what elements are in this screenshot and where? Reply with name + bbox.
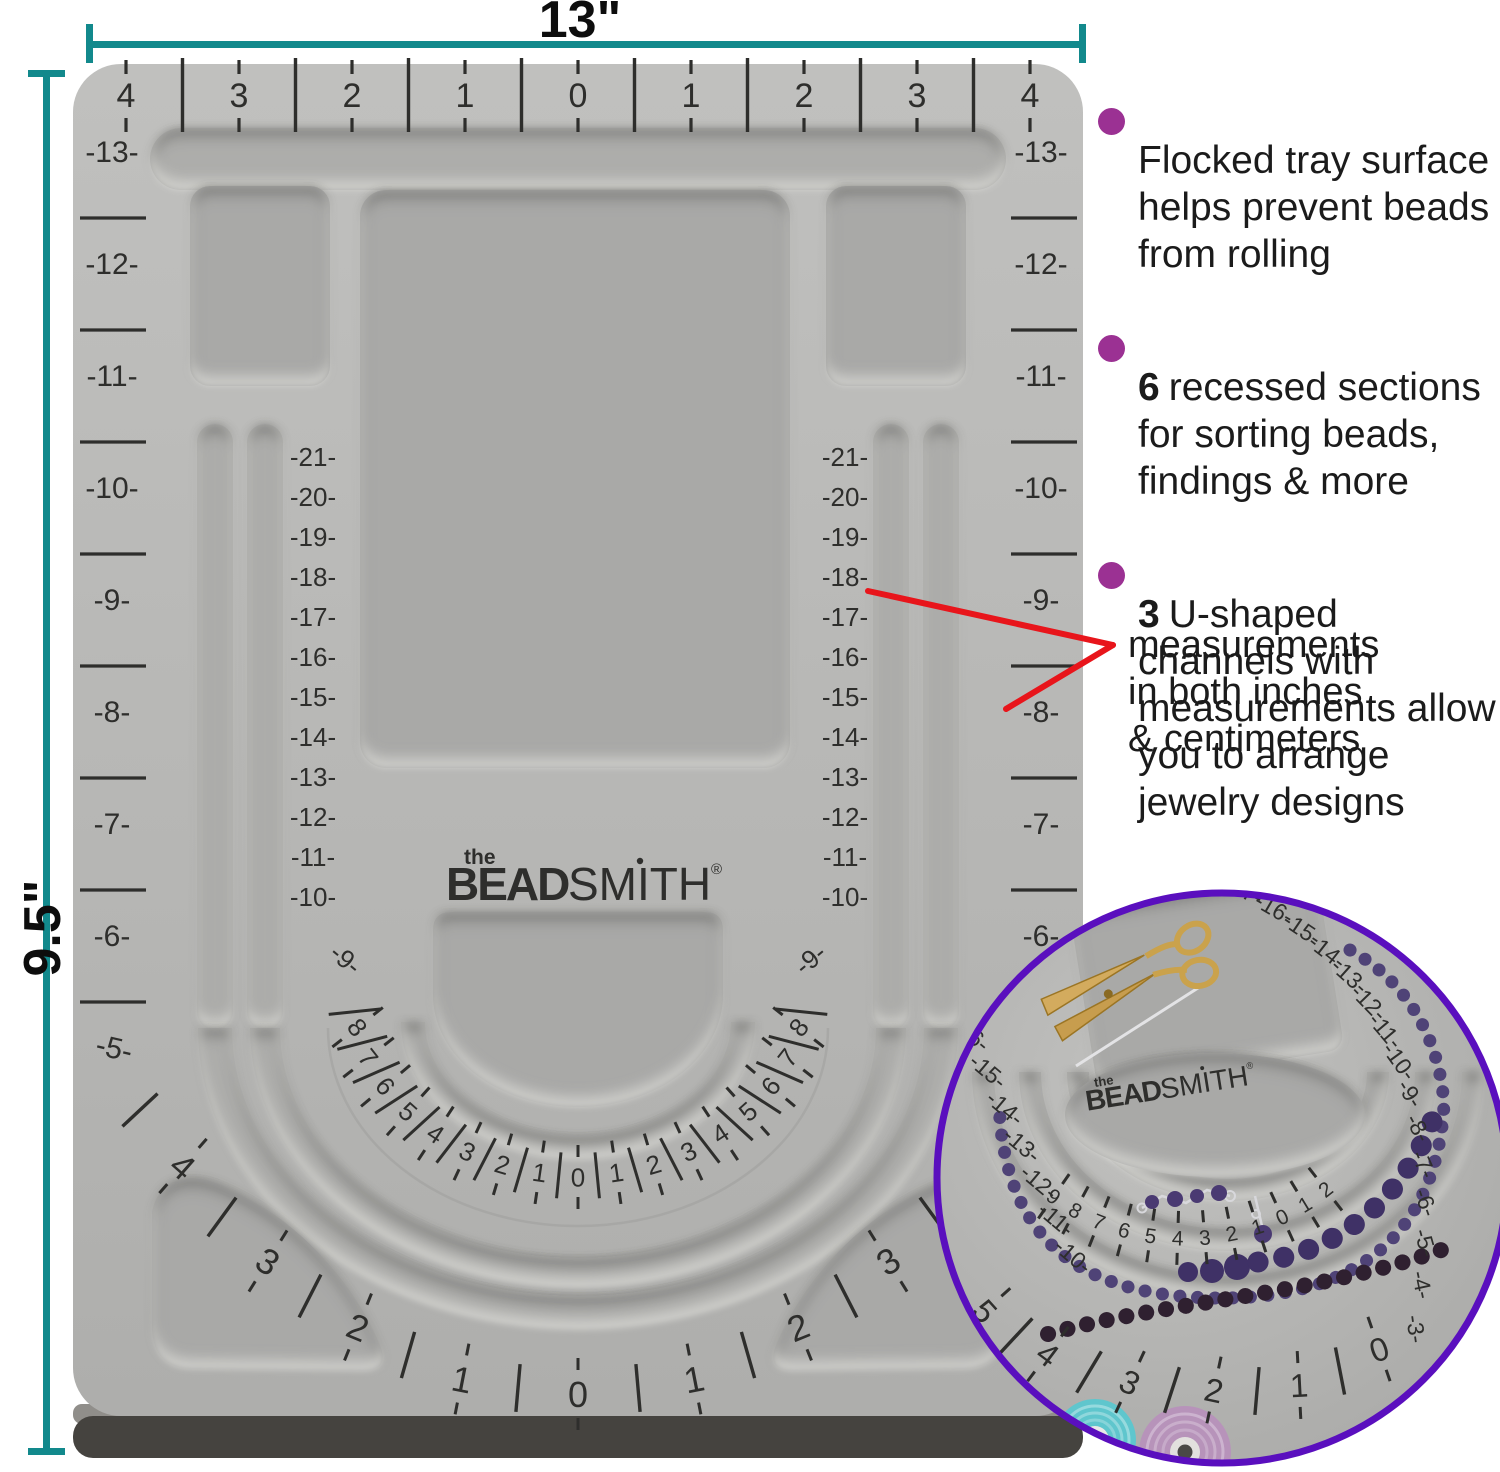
- callout-line: measurements: [1128, 622, 1379, 669]
- svg-text:2: 2: [343, 77, 362, 115]
- svg-text:BEAD: BEAD: [446, 858, 569, 910]
- channel-leg: [873, 424, 909, 1030]
- svg-text:-11-: -11-: [823, 842, 867, 872]
- svg-text:2: 2: [795, 77, 814, 115]
- measurement-callout: measurements in both inches & centimeter…: [1128, 622, 1379, 763]
- svg-text:1: 1: [1289, 1366, 1309, 1404]
- svg-text:-20-: -20-: [822, 482, 868, 512]
- svg-text:-19-: -19-: [822, 522, 868, 552]
- svg-text:-6-: -6-: [94, 920, 131, 953]
- svg-text:-7-: -7-: [1023, 808, 1060, 841]
- svg-text:-17-: -17-: [290, 602, 336, 632]
- svg-text:-12-: -12-: [85, 248, 138, 281]
- feature-item: 6recessed sections for sorting beads, fi…: [1098, 325, 1498, 544]
- svg-text:3: 3: [908, 77, 927, 115]
- svg-text:®: ®: [711, 861, 722, 878]
- svg-text:-11-: -11-: [291, 842, 335, 872]
- callout-line: & centimeters: [1128, 716, 1379, 763]
- callout-line: in both inches: [1128, 669, 1379, 716]
- svg-text:-3-: -3-: [1401, 1313, 1431, 1344]
- svg-text:-14-: -14-: [290, 722, 336, 752]
- bead: [1178, 1262, 1198, 1282]
- svg-text:3: 3: [230, 77, 249, 115]
- feature-item: Flocked tray surface helps prevent beads…: [1098, 98, 1498, 317]
- svg-text:-7-: -7-: [94, 808, 131, 841]
- channel-leg: [197, 424, 233, 1030]
- svg-text:-12-: -12-: [1014, 248, 1067, 281]
- svg-text:-8-: -8-: [94, 696, 131, 729]
- compartment-center: [360, 190, 790, 768]
- svg-text:-10-: -10-: [290, 882, 336, 912]
- svg-text:-13-: -13-: [822, 762, 868, 792]
- channel-leg: [923, 424, 959, 1030]
- svg-text:1: 1: [682, 77, 701, 115]
- svg-text:SMITH: SMITH: [568, 858, 711, 910]
- svg-text:-19-: -19-: [290, 522, 336, 552]
- svg-text:0: 0: [571, 1162, 585, 1192]
- svg-text:-9-: -9-: [1023, 584, 1060, 617]
- feature-text: 6recessed sections for sorting beads, fi…: [1138, 364, 1498, 505]
- svg-text:-8-: -8-: [1023, 696, 1060, 729]
- product-infographic: 432101234-13--13--12--12--11--11--10--10…: [0, 0, 1500, 1472]
- compartment-top-left: [190, 186, 330, 386]
- svg-text:4: 4: [1021, 77, 1040, 115]
- svg-text:-10-: -10-: [85, 472, 138, 505]
- bullet-icon: [1098, 108, 1125, 135]
- svg-text:-14-: -14-: [822, 722, 868, 752]
- width-dimension-label: 13": [495, 0, 665, 50]
- feature-text: Flocked tray surface helps prevent beads…: [1138, 137, 1498, 278]
- bead-board: 432101234-13--13--12--12--11--11--10--10…: [73, 58, 1083, 1458]
- svg-text:4: 4: [117, 77, 136, 115]
- svg-text:4: 4: [1171, 1227, 1184, 1250]
- svg-text:-9-: -9-: [94, 584, 131, 617]
- svg-text:-18-: -18-: [290, 562, 336, 592]
- svg-text:-17-: -17-: [822, 602, 868, 632]
- svg-text:-16-: -16-: [290, 642, 336, 672]
- svg-text:-12-: -12-: [290, 802, 336, 832]
- svg-text:-13-: -13-: [290, 762, 336, 792]
- svg-text:-15-: -15-: [290, 682, 336, 712]
- compartment-top-right: [826, 186, 966, 386]
- svg-text:-11-: -11-: [86, 360, 137, 393]
- svg-text:0: 0: [568, 1374, 588, 1415]
- bullet-icon: [1098, 562, 1125, 589]
- svg-text:-13-: -13-: [1014, 136, 1067, 169]
- bullet-icon: [1098, 335, 1125, 362]
- top-groove: [150, 128, 1006, 190]
- svg-text:-20-: -20-: [290, 482, 336, 512]
- svg-text:-16-: -16-: [822, 642, 868, 672]
- bead: [1200, 1259, 1224, 1283]
- svg-text:-15-: -15-: [822, 682, 868, 712]
- svg-text:-21-: -21-: [290, 442, 336, 472]
- svg-text:-10-: -10-: [822, 882, 868, 912]
- svg-text:1: 1: [456, 77, 475, 115]
- svg-text:3: 3: [1198, 1226, 1212, 1250]
- height-dimension-label: 9.5": [13, 843, 73, 1013]
- svg-text:-12-: -12-: [822, 802, 868, 832]
- svg-text:-11-: -11-: [1015, 360, 1066, 393]
- svg-text:0: 0: [569, 77, 588, 115]
- svg-text:-10-: -10-: [1014, 472, 1067, 505]
- svg-text:-13-: -13-: [85, 136, 138, 169]
- svg-text:-18-: -18-: [822, 562, 868, 592]
- channel-leg: [247, 424, 283, 1030]
- svg-text:-21-: -21-: [822, 442, 868, 472]
